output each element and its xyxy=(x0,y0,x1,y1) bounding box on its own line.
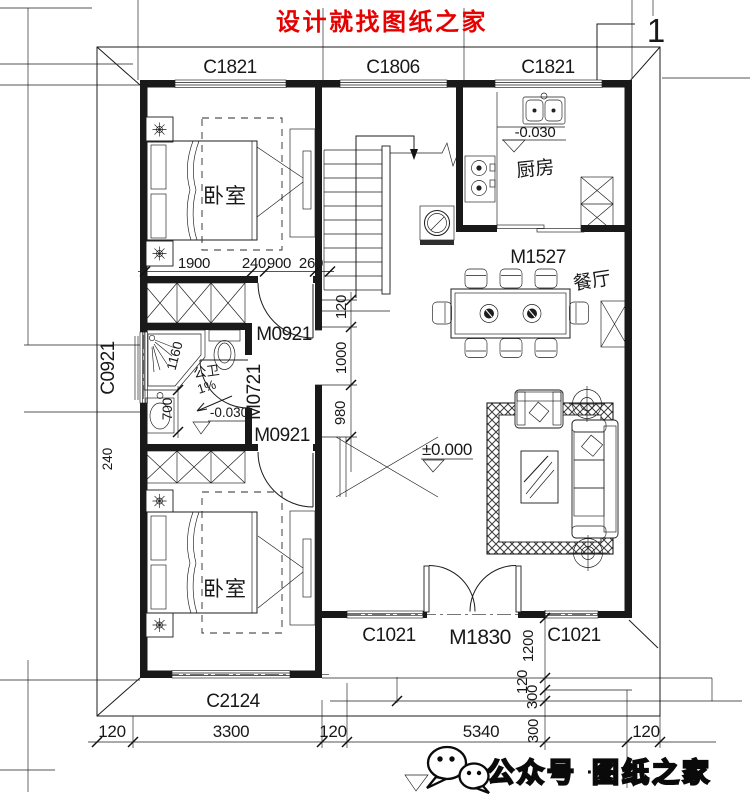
labels: 设计就找图纸之家 C1821 C1806 C1821 C0921 C2124 C… xyxy=(98,8,660,743)
dim-120-bl: 120 xyxy=(98,722,125,741)
faucet xyxy=(541,93,547,99)
dim-120-bm: 120 xyxy=(319,722,346,741)
page-title: 设计就找图纸之家 xyxy=(276,8,488,36)
door-label-m0921-bottom: M0921 xyxy=(254,425,310,446)
footer-brand: 图纸之家 xyxy=(592,757,712,788)
door-m1830-entry xyxy=(424,566,521,613)
dim-300a: 300 xyxy=(524,685,541,709)
wechat-icon xyxy=(427,747,489,793)
window-c0921-symbol xyxy=(135,332,148,403)
room-label-dining: 餐厅 xyxy=(572,267,613,295)
window-label-c1021-right: C1021 xyxy=(547,625,601,646)
window-c1821-top-left-symbol xyxy=(175,80,286,88)
dim-700: 700 xyxy=(160,398,175,421)
level-bath: -0.030 xyxy=(210,405,248,420)
flower-icon xyxy=(153,247,167,261)
room-label-kitchen: 厨房 xyxy=(515,156,555,182)
room-label-bedroom1: 卧室 xyxy=(203,185,247,208)
stove xyxy=(465,156,495,202)
rug-dashed xyxy=(202,492,282,633)
dining-table xyxy=(451,289,570,338)
mirror xyxy=(303,539,311,597)
dim-5340: 5340 xyxy=(463,722,500,741)
floor-plan-page: 1 xyxy=(0,0,750,794)
dim-1200: 1200 xyxy=(520,630,537,662)
window-label-c1821-left: C1821 xyxy=(203,57,257,78)
stairs xyxy=(322,136,463,311)
room-label-bedroom2: 卧室 xyxy=(203,578,247,601)
window-label-c1806: C1806 xyxy=(366,57,420,78)
triangle-mark xyxy=(405,775,428,791)
dim-120-mid: 120 xyxy=(333,295,350,319)
level-kitchen: -0.030 xyxy=(515,124,556,141)
closet-top xyxy=(143,283,245,323)
bedroom2-furniture xyxy=(146,490,315,637)
window-c1821-top-right-symbol xyxy=(495,80,602,88)
armchair xyxy=(515,390,563,428)
door-label-m1830: M1830 xyxy=(449,626,511,649)
door-label-m1527: M1527 xyxy=(510,247,566,268)
window-label-c1821-right: C1821 xyxy=(521,57,575,78)
window-label-c1021-left: C1021 xyxy=(362,625,416,646)
stair-up-arrow xyxy=(410,149,418,160)
door-m1527-sliding xyxy=(497,225,584,232)
living-set xyxy=(487,386,618,571)
closet-bottom xyxy=(143,451,245,483)
window-c1806-symbol xyxy=(340,80,447,88)
level-living: ±0.000 xyxy=(422,440,472,459)
window-label-c2124: C2124 xyxy=(206,691,260,712)
mirror xyxy=(303,151,311,209)
flower-icon xyxy=(153,123,167,137)
footer: 公众号 · 图纸之家 xyxy=(405,747,712,793)
dim-300b: 300 xyxy=(525,719,542,743)
sofa xyxy=(572,420,618,538)
kitchen-sink xyxy=(523,97,565,124)
axis-lines xyxy=(0,0,750,792)
sheet-number: 1 xyxy=(647,12,665,49)
door-m0921-bedroom2 xyxy=(258,452,313,507)
rug-dashed xyxy=(202,118,282,250)
dim-120-br: 120 xyxy=(632,722,659,741)
sheet-callout: 1 xyxy=(597,12,665,80)
washer xyxy=(420,206,454,240)
dim-1000: 1000 xyxy=(333,342,350,374)
dim-240: 240 xyxy=(242,255,266,272)
footer-account: 公众号 xyxy=(487,758,577,788)
dim-260: 260 xyxy=(299,255,323,272)
dim-1900: 1900 xyxy=(178,255,210,272)
door-label-m0921-top: M0921 xyxy=(256,324,312,345)
toilet-tank xyxy=(209,330,240,341)
dim-240-bath: 240 xyxy=(100,448,115,471)
window-label-c0921: C0921 xyxy=(98,341,119,395)
dim-3300: 3300 xyxy=(213,722,250,741)
dim-980: 980 xyxy=(332,401,349,425)
flower-icon xyxy=(153,494,167,508)
flower-icon xyxy=(153,618,167,632)
dim-900: 900 xyxy=(267,255,291,272)
